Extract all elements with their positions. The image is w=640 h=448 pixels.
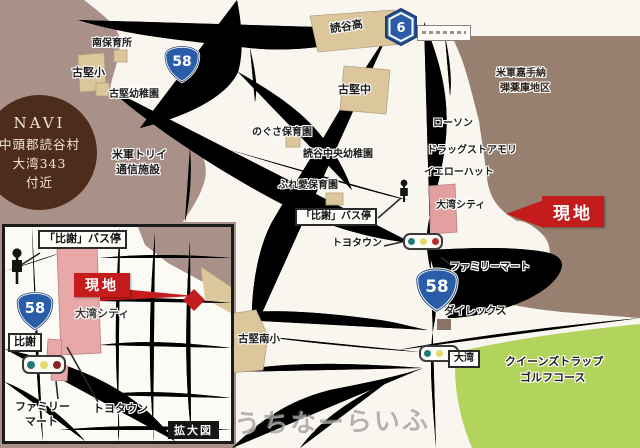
label-direx: ダイレックス xyxy=(444,306,507,318)
label-nogusa-nursery: のぐさ保育園 xyxy=(252,127,312,138)
label-kadena-depot-line2: 弾薬庫地区 xyxy=(500,83,550,94)
label-furugen-kindergarten: 古堅幼稚園 xyxy=(109,89,159,100)
label-furugen-minami-elementary: 古堅南小 xyxy=(238,334,280,346)
label-toyotown: トヨタウン xyxy=(93,403,148,415)
label-yellow-hat: イエローハット xyxy=(424,167,494,178)
label-minami-hoikusho: 南保育所 xyxy=(92,38,132,49)
navi-address-3: 付近 xyxy=(26,172,53,191)
label-owan-intersection: 大湾 xyxy=(448,350,480,368)
route58-number: 58 xyxy=(425,277,448,296)
label-golf-line2: ゴルフコース xyxy=(520,372,585,384)
watermark: うちなーらいふ xyxy=(234,400,431,440)
label-golf-line1: クイーンズトラップ xyxy=(505,356,603,368)
enlarged-map-label: 拡大図 xyxy=(168,421,219,439)
label-furugen-elementary: 古堅小 xyxy=(72,67,105,79)
bus-stop-icon xyxy=(397,179,411,203)
site-marker-inset: 現地 xyxy=(74,273,130,297)
label-drugstore-mori: ドラッグストアモリ xyxy=(427,145,517,156)
label-kadena-depot-line1: 米軍嘉手納 xyxy=(496,68,546,79)
navi-address-1: 中頭郡読谷村 xyxy=(0,134,80,153)
label-yomitan-central-kindergarten: 読谷中央幼稚園 xyxy=(303,149,373,160)
label-torii-line1: 米軍トリイ xyxy=(112,149,167,161)
route58-shield-top: 58 xyxy=(162,44,202,86)
inset-map: 58 「比謝」バス停 現地 大湾シティ 比謝 ファミリー マート トヨタウン 拡… xyxy=(2,224,234,444)
direx-building xyxy=(437,319,451,330)
traffic-light xyxy=(403,233,443,250)
route6-shield: 6 xyxy=(382,8,420,46)
navi-address-2: 大湾343 xyxy=(13,153,67,172)
route58-number: 58 xyxy=(172,54,191,70)
access-map: 58 58 6 NAVI 中頭郡読谷村 大湾343 付近 南保育所 古堅小 古堅… xyxy=(0,0,640,448)
bus-stop-icon xyxy=(8,247,26,285)
route58-number: 58 xyxy=(25,300,45,317)
label-owan-city: 大湾シティ xyxy=(436,200,485,211)
label-fureai-nursery: ふれ愛保育園 xyxy=(278,180,338,191)
route58-shield-inset: 58 xyxy=(14,290,56,334)
label-familymart-line2: マート xyxy=(25,416,58,428)
label-hija-intersection: 比謝 xyxy=(8,333,42,352)
label-toyotown: トヨタウン xyxy=(332,238,382,249)
label-hija-bus-stop: 「比謝」バス停 xyxy=(38,230,127,249)
label-torii-line2: 通信施設 xyxy=(116,164,160,176)
direction-sign xyxy=(417,25,471,41)
label-owan-city: 大湾シティ xyxy=(75,308,129,320)
inset-familymart-leader xyxy=(56,381,58,399)
label-hija-bus-stop: 「比謝」バス停 xyxy=(295,208,377,226)
label-furugen-junior-high: 古堅中 xyxy=(338,84,371,96)
route6-number: 6 xyxy=(396,21,405,36)
label-familymart: ファミリーマート xyxy=(450,262,530,273)
site-diamond-inset xyxy=(183,289,205,311)
navi-title: NAVI xyxy=(14,114,66,132)
label-familymart-line1: ファミリー xyxy=(15,401,70,413)
traffic-light xyxy=(22,355,66,374)
site-marker-main: 現地 xyxy=(542,196,604,227)
label-lawson: ローソン xyxy=(433,118,473,129)
